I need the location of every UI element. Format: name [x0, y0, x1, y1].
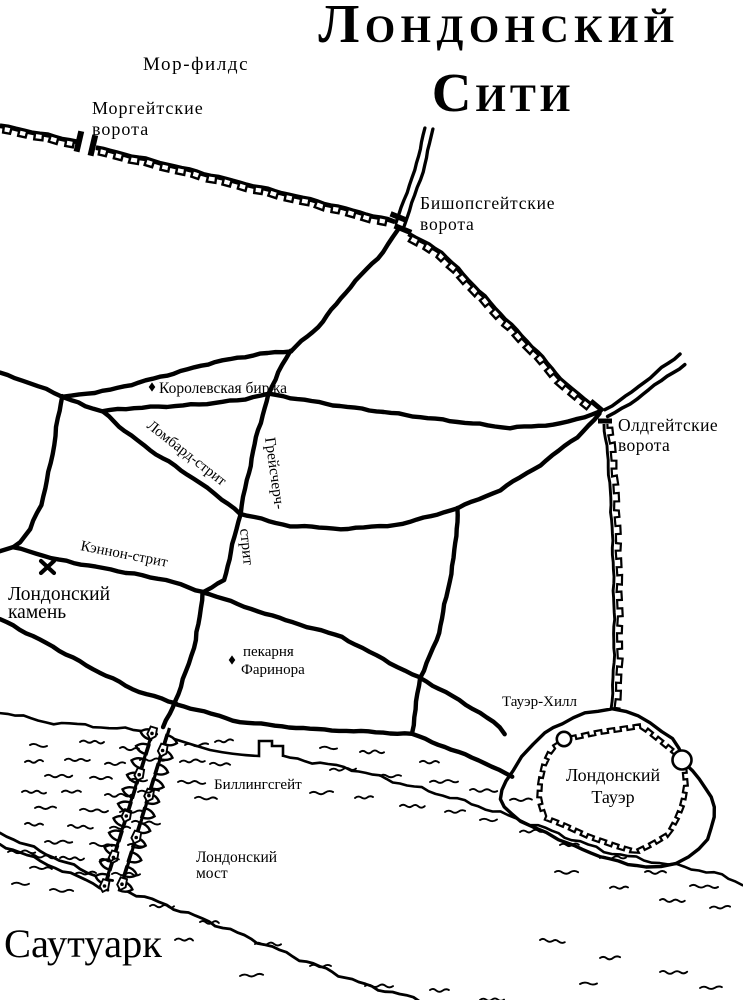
- svg-text:Королевская биржа: Королевская биржа: [159, 380, 287, 397]
- svg-text:ворота: ворота: [618, 435, 670, 455]
- svg-text:Тауэр-Хилл: Тауэр-Хилл: [502, 694, 577, 710]
- svg-text:Саутуарк: Саутуарк: [4, 921, 162, 966]
- svg-text:Бишопсгейтские: Бишопсгейтские: [420, 193, 555, 213]
- svg-text:Сити: Сити: [432, 62, 574, 123]
- svg-text:Моргейтские: Моргейтские: [92, 98, 204, 118]
- svg-text:Олдгейтские: Олдгейтские: [618, 415, 718, 435]
- svg-text:мост: мост: [196, 865, 228, 882]
- svg-text:ворота: ворота: [92, 119, 149, 139]
- svg-text:Фаринора: Фаринора: [241, 662, 305, 678]
- svg-text:Лондонский: Лондонский: [196, 849, 277, 866]
- svg-text:ворота: ворота: [420, 214, 475, 234]
- svg-text:камень: камень: [8, 602, 66, 623]
- svg-text:Биллингсгейт: Биллингсгейт: [214, 777, 302, 793]
- svg-text:Мор-филдс: Мор-филдс: [143, 54, 249, 75]
- svg-text:Лондонский: Лондонский: [318, 0, 679, 54]
- svg-text:пекарня: пекарня: [243, 644, 294, 660]
- svg-text:Лондонский: Лондонский: [566, 765, 661, 785]
- svg-text:Тауэр: Тауэр: [591, 787, 634, 807]
